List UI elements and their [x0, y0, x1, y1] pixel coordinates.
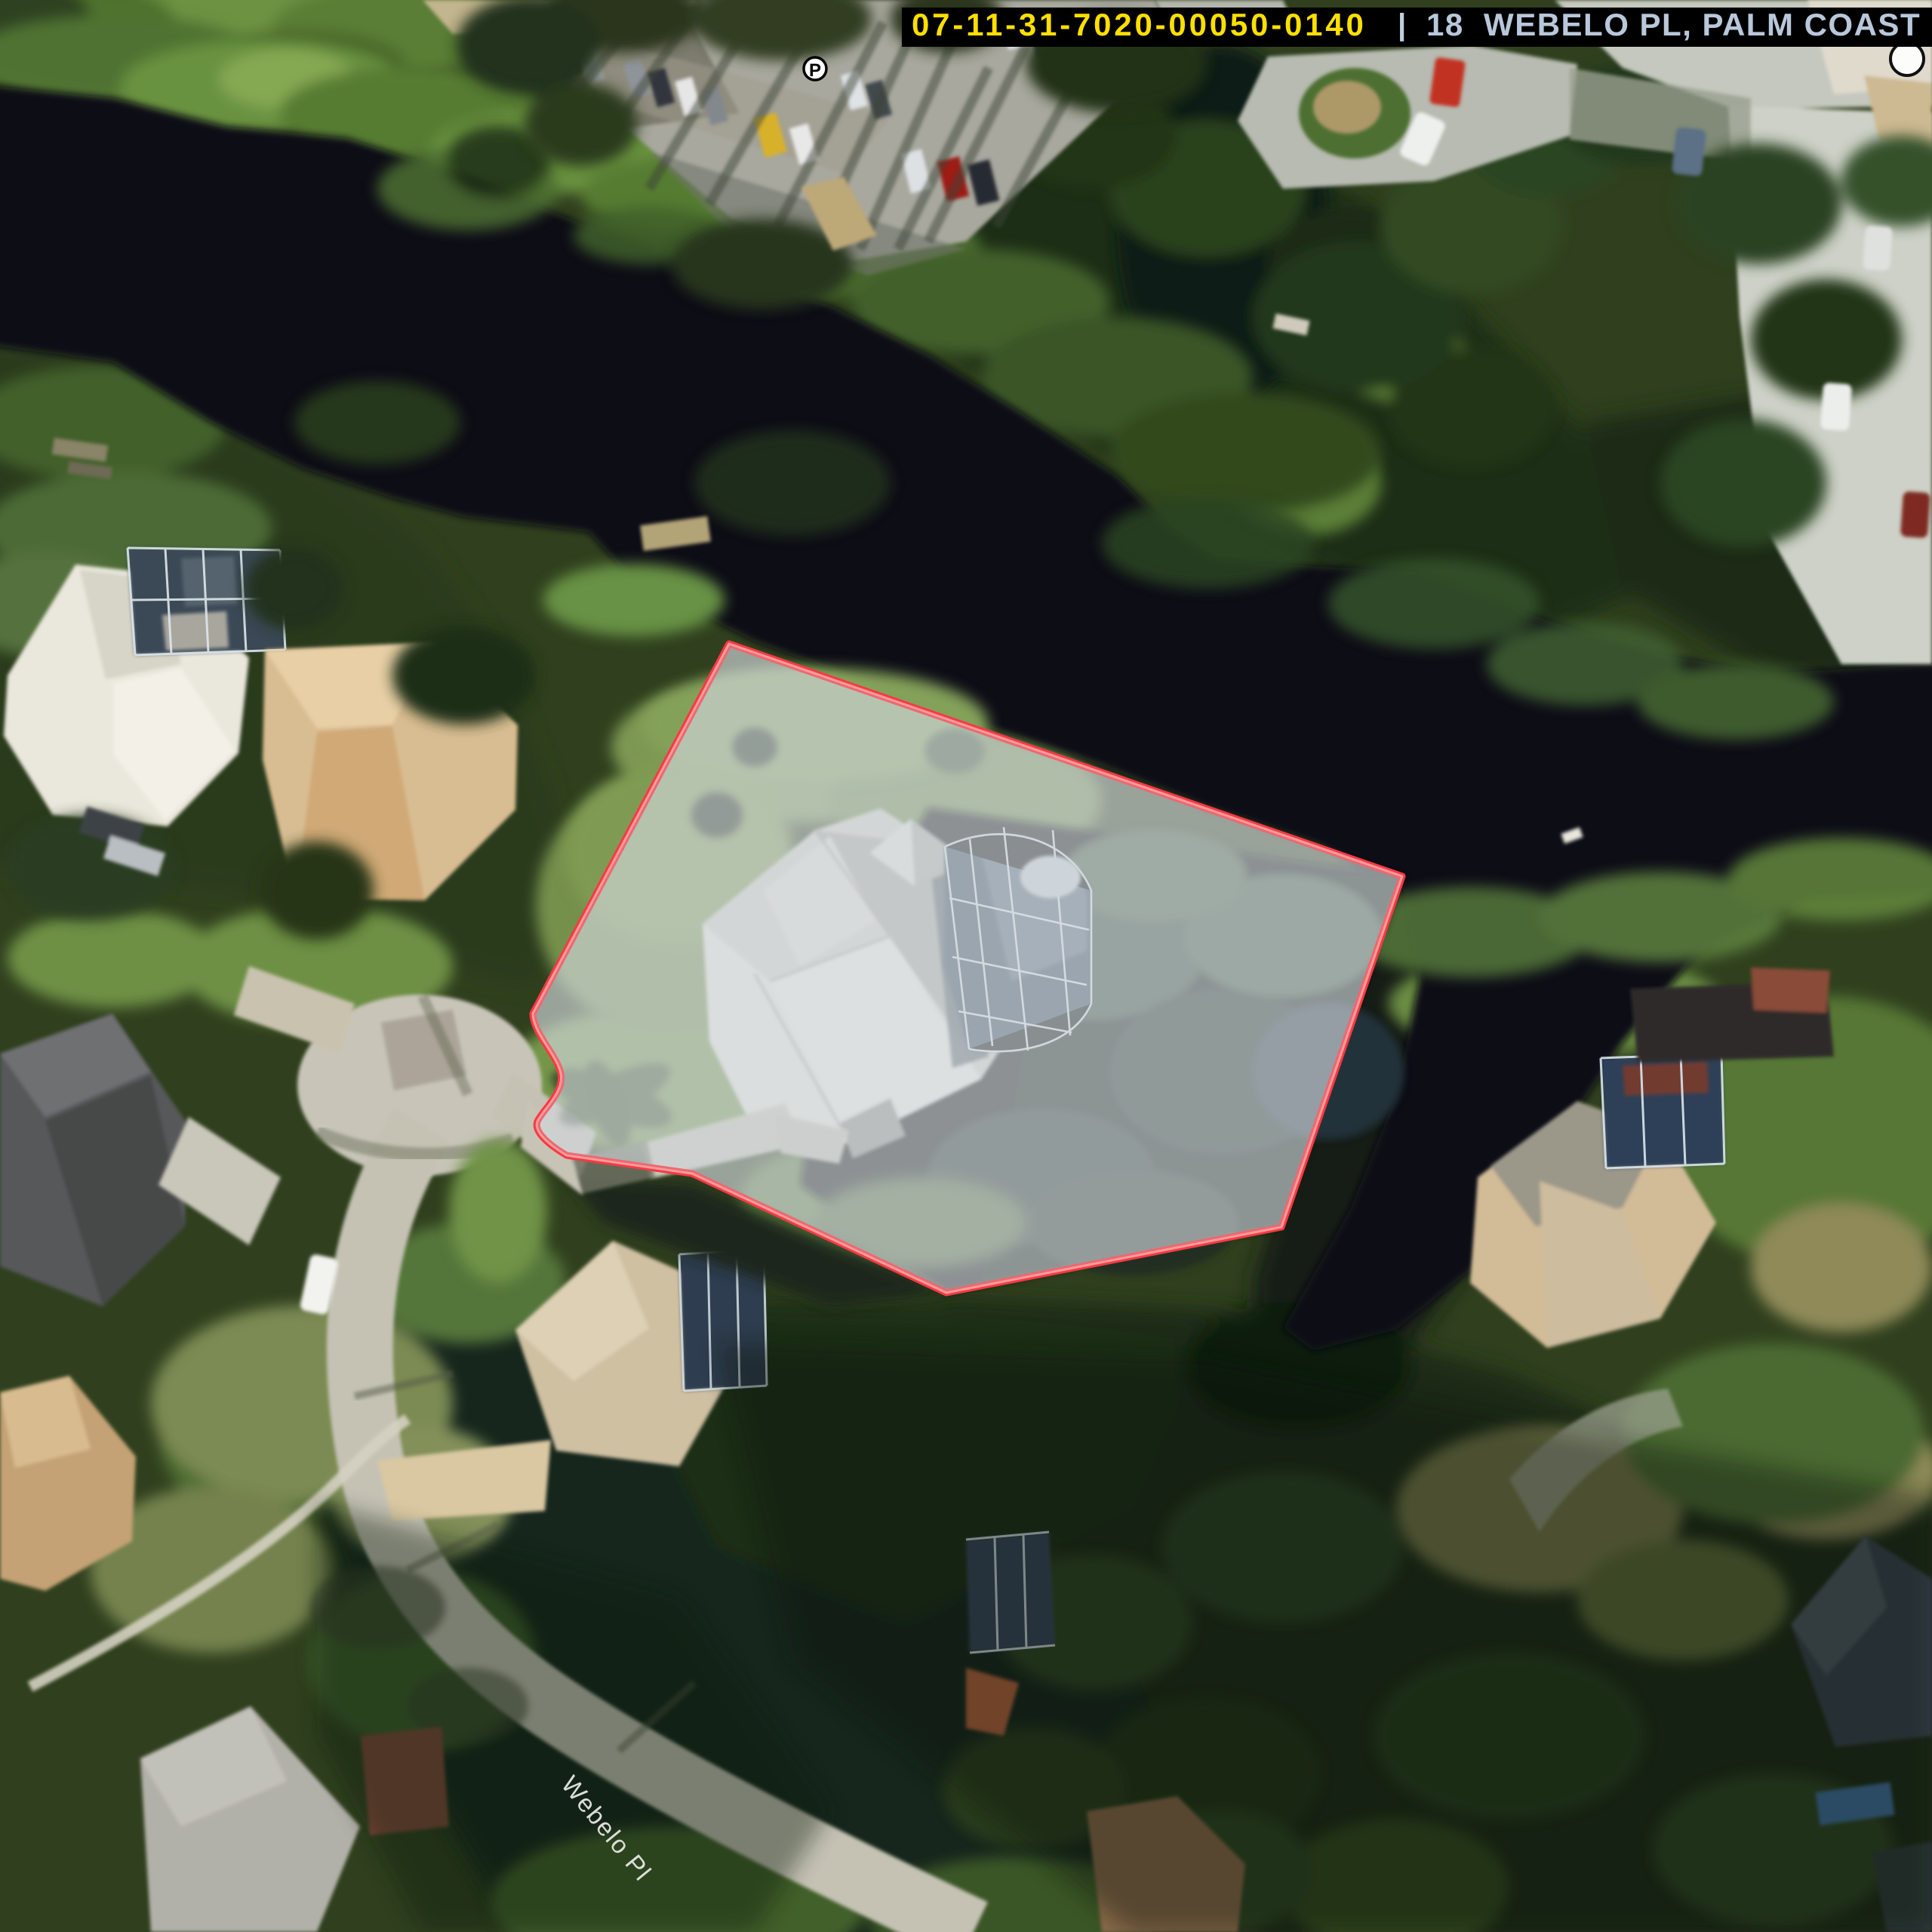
svg-text:P: P [809, 60, 821, 81]
svg-text:|: | [1398, 8, 1406, 42]
svg-text:07-11-31-7020-00050-0140: 07-11-31-7020-00050-0140 [912, 7, 1367, 42]
svg-text:18 WEBELO PL, PALM COAST: 18 WEBELO PL, PALM COAST [1426, 7, 1921, 42]
